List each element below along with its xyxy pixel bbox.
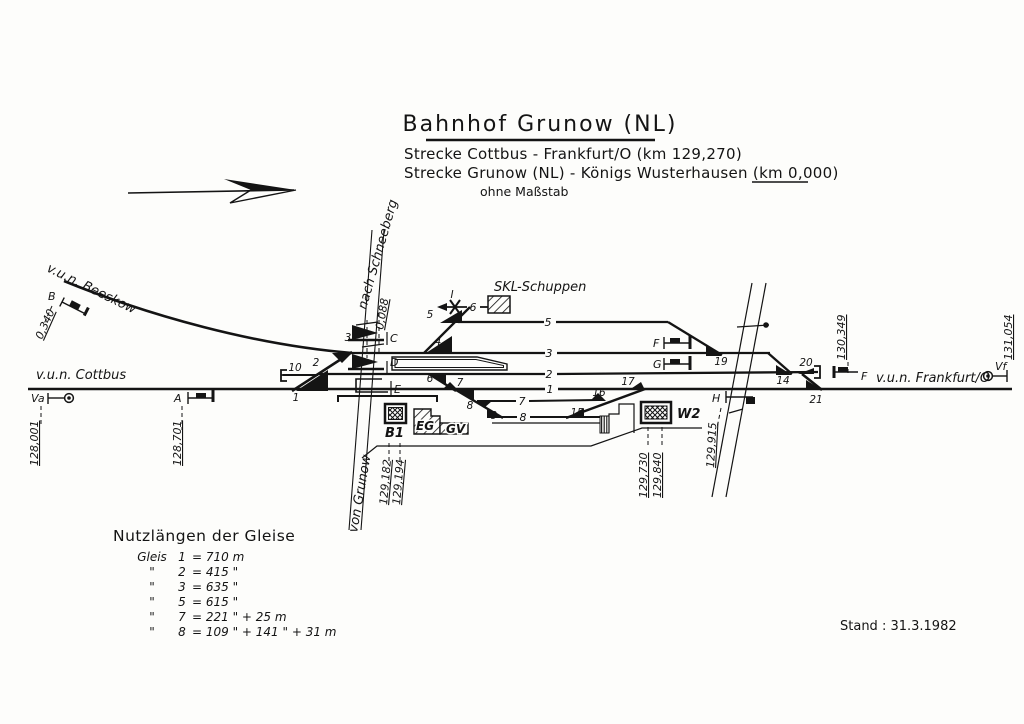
- station-building-eg: EG: [414, 409, 440, 434]
- signal-f-east: 130,349 F: [834, 315, 868, 384]
- signal-vf-km: 131,054: [1002, 315, 1015, 361]
- signal-f-east-km: 130,349: [835, 315, 848, 361]
- direction-frankfurt-label: v.u.n. Frankfurt/O: [876, 371, 990, 386]
- header: Bahnhof Grunow (NL) Strecke Cottbus - Fr…: [403, 112, 839, 199]
- skl-shed: SKL-Schuppen: [488, 280, 586, 313]
- point-1: 1: [293, 392, 300, 404]
- signal-f-mid-label: F: [653, 337, 660, 350]
- row-4-track: 5: [178, 595, 186, 609]
- signal-e-label: E: [394, 383, 401, 396]
- row-1-track: 1: [178, 550, 186, 564]
- direction-beeskow-label: v.u.n. Beeskow: [44, 261, 138, 317]
- derail-number: I: [450, 289, 453, 301]
- track-label-1: 1: [547, 383, 554, 396]
- row-1-value: = 710 m: [192, 550, 244, 564]
- signal-va-label: Va: [31, 392, 45, 405]
- point-6: 6: [427, 373, 434, 385]
- direction-grunow-label: von Grunow: [346, 453, 374, 533]
- track-plan-sheet: Bahnhof Grunow (NL) Strecke Cottbus - Fr…: [0, 0, 1024, 724]
- row-6-track: 8: [178, 625, 186, 639]
- track-label-8: 8: [520, 411, 527, 424]
- signal-f-mid: F: [653, 335, 690, 350]
- point-3: 3: [345, 332, 352, 344]
- row-3-track: 3: [178, 580, 186, 594]
- row-2-value: = 415 ": [192, 565, 238, 579]
- track-label-6: 6: [470, 301, 477, 314]
- row-4-value: = 615 ": [192, 595, 238, 609]
- w2-km-1: 129,730: [637, 453, 650, 499]
- signal-box-b1-label: B1: [385, 426, 404, 441]
- signal-c-label: C: [390, 332, 398, 345]
- row-5-value: = 221 " + 25 m: [192, 610, 287, 624]
- row-2-label: ": [149, 565, 155, 579]
- point-5: 5: [427, 309, 434, 321]
- signal-va: Va 128,001: [28, 392, 73, 466]
- route-line-1: Strecke Cottbus - Frankfurt/O (km 129,27…: [404, 145, 742, 163]
- signal-h-label: H: [712, 392, 720, 405]
- row-5-track: 7: [178, 610, 186, 624]
- skl-shed-label: SKL-Schuppen: [494, 280, 586, 295]
- row-3-label: ": [149, 580, 155, 594]
- track-label-2: 2: [546, 368, 553, 381]
- ramp-icon: [600, 416, 609, 433]
- point-14: 14: [776, 375, 789, 387]
- signal-b-label: B: [48, 290, 56, 303]
- signal-g-label: G: [653, 358, 662, 371]
- goods-shed-gv-label: GV: [446, 422, 467, 436]
- goods-shed-gv: GV: [440, 422, 468, 436]
- signal-b-km: 0,340: [33, 307, 58, 341]
- route-line-2: Strecke Grunow (NL) - Königs Wusterhause…: [404, 164, 839, 182]
- station-building-eg-label: EG: [416, 419, 434, 433]
- point-20: 20: [799, 357, 813, 369]
- beeskow-line: v.u.n. Beeskow: [44, 261, 352, 353]
- table-title: Nutzlängen der Gleise: [113, 527, 295, 545]
- track-label-3: 3: [546, 347, 553, 360]
- signal-a-km: 128,701: [171, 421, 184, 467]
- point-8: 8: [467, 400, 474, 412]
- point-2: 2: [313, 357, 320, 369]
- station-diagram: Bahnhof Grunow (NL) Strecke Cottbus - Fr…: [0, 0, 1024, 724]
- platform-main: [392, 357, 507, 370]
- track-length-table: Nutzlängen der Gleise Gleis 1 = 710 m " …: [113, 527, 337, 639]
- signal-h-km: 129,915: [704, 422, 719, 468]
- point-10: 10: [288, 362, 302, 374]
- signal-box-w2-label: W2: [677, 407, 700, 422]
- signal-d-label: D: [390, 356, 398, 369]
- signal-a-label: A: [173, 392, 182, 405]
- row-3-value: = 635 ": [192, 580, 238, 594]
- row-1-label: Gleis: [137, 550, 167, 564]
- point-4: 4: [435, 336, 442, 348]
- row-2-track: 2: [178, 565, 186, 579]
- w2-km-2: 129,840: [651, 453, 664, 499]
- revision-date: Stand : 31.3.1982: [840, 619, 957, 634]
- signal-e: E: [356, 379, 401, 396]
- signal-va-km: 128,001: [28, 421, 41, 467]
- signal-f-east-label: F: [861, 370, 868, 383]
- point-21: 21: [809, 394, 822, 406]
- point-16: 16: [592, 387, 606, 399]
- signal-b: B 0,340: [33, 290, 88, 341]
- signal-g: G: [653, 356, 690, 371]
- point-15: 15: [570, 407, 584, 419]
- signal-box-b1: B1 129,182 129,194: [377, 404, 407, 505]
- direction-schneeberg-label: nach Schneeberg: [355, 198, 401, 311]
- direction-cottbus-label: v.u.n. Cottbus: [36, 368, 126, 383]
- platform-edge: [338, 396, 437, 402]
- point-19: 19: [714, 356, 728, 368]
- point-numbers: 1 2 3 4 5 6 7 8 9 10 14 15 16 17 19 20 2…: [288, 309, 822, 422]
- signal-box-w2: W2 129,730 129,840: [637, 402, 700, 498]
- track-label-5: 5: [545, 316, 552, 329]
- b1-km-2: 129,194: [390, 459, 407, 505]
- scale-note: ohne Maßstab: [480, 184, 569, 199]
- row-6-value: = 109 " + 141 " + 31 m: [192, 625, 337, 639]
- point-17: 17: [621, 376, 635, 388]
- branch-km: 0,088: [373, 297, 391, 330]
- track-label-7: 7: [519, 395, 526, 408]
- signal-a: A 128,701: [171, 390, 213, 466]
- page-title: Bahnhof Grunow (NL): [403, 112, 678, 137]
- direction-arrow-icon: [128, 179, 296, 203]
- point-7: 7: [457, 377, 464, 389]
- signal-vf: Vf 131,054: [984, 315, 1015, 383]
- row-4-label: ": [149, 595, 155, 609]
- row-5-label: ": [149, 610, 155, 624]
- point-9: 9: [491, 410, 498, 422]
- row-6-label: ": [149, 625, 155, 639]
